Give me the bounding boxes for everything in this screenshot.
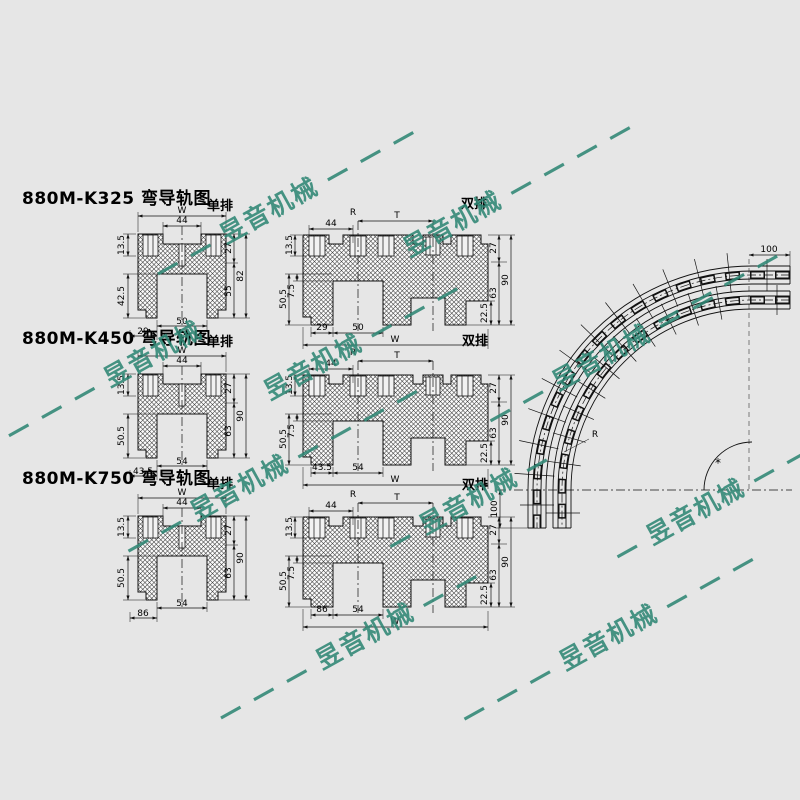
dim-recess: 44 — [176, 498, 188, 508]
drawing-sheet: 880M-K325 弯导轨图 880M-K450 弯导轨图 880M-K750 … — [0, 0, 800, 800]
dim-r-full: 90 — [501, 556, 511, 568]
dim-r: R — [350, 490, 356, 500]
dim-r-top: 27 — [224, 382, 234, 393]
dim-w: W — [178, 206, 187, 216]
profile-geometry — [138, 226, 226, 326]
dim-recess: 44 — [325, 359, 337, 369]
dim-r: R — [350, 348, 356, 358]
dim-bottom-left: 43.5 — [133, 467, 153, 477]
dim-r-low: 63 — [224, 567, 234, 578]
dim-bottom-channel: 54 — [176, 599, 188, 609]
dim-straight-top: 100 — [760, 245, 777, 255]
dim-tab-height: 13.5 — [117, 375, 127, 395]
dim-r-top: 27 — [224, 242, 234, 253]
dim-bottom-channel: 50 — [352, 323, 364, 333]
dim-bottom-channel: 54 — [352, 463, 364, 473]
center-and-dimension-lines: 100 100 * R — [490, 245, 792, 528]
dim-corner: 22.5 — [480, 443, 490, 463]
dim-r-full: 82 — [236, 270, 246, 281]
dim-recess: 44 — [325, 219, 337, 229]
cross-section-single-k325: W 44 13.5 42.5 27 55 82 50 29 — [100, 206, 275, 354]
curved-rail-plan-view: 100 100 * R — [492, 243, 800, 543]
dim-bottom-channel: 54 — [176, 457, 188, 467]
dim-t: T — [393, 211, 400, 221]
radius-label: R — [592, 430, 598, 440]
dim-t: T — [393, 493, 400, 503]
dim-t: T — [393, 351, 400, 361]
profile-geometry — [138, 508, 226, 608]
dim-bottom-left: 29 — [137, 327, 149, 337]
dim-tab-height: 13.5 — [285, 235, 295, 255]
cross-section-double-k450: R T 44 13.5 50.5 7.5 27 63 90 22.5 43.5 … — [283, 343, 523, 501]
dim-w: W — [178, 488, 187, 498]
dim-r-full: 90 — [236, 552, 246, 564]
dim-recess: 44 — [176, 356, 188, 366]
profile-geometry — [138, 366, 226, 466]
dim-leg-height: 50.5 — [117, 426, 127, 446]
dim-leg-height: 42.5 — [117, 286, 127, 306]
dim-tab-height: 13.5 — [117, 235, 127, 255]
dim-bottom-left: 86 — [137, 609, 149, 619]
cross-section-single-k450: W 44 13.5 50.5 27 63 90 54 43.5 — [100, 346, 275, 494]
dim-r-low: 63 — [224, 425, 234, 436]
rail-arcs — [528, 266, 790, 528]
dim-tab-height: 13.5 — [285, 517, 295, 537]
dim-corner: 22.5 — [480, 303, 490, 323]
dim-tab-height: 13.5 — [285, 375, 295, 395]
dim-w: W — [178, 346, 187, 356]
dim-r: R — [350, 208, 356, 218]
angle-mark: * — [715, 456, 721, 470]
dim-bottom-left: 43.5 — [312, 463, 332, 473]
dim-tab-height: 13.5 — [117, 517, 127, 537]
dim-recess: 44 — [325, 501, 337, 511]
dim-corner: 22.5 — [480, 585, 490, 605]
dim-w: W — [391, 475, 400, 485]
dim-step: 7.5 — [287, 284, 297, 298]
dim-recess: 44 — [176, 216, 188, 226]
cross-section-double-k750: R T 44 13.5 50.5 7.5 27 63 90 22.5 86 54… — [283, 485, 523, 643]
dim-r-low: 63 — [489, 569, 499, 580]
profile-geometry — [303, 503, 488, 613]
dim-step: 7.5 — [287, 424, 297, 438]
profile-geometry — [303, 361, 488, 471]
dim-bottom-left: 86 — [316, 605, 328, 615]
dim-r-top: 27 — [224, 524, 234, 535]
dim-straight-side: 100 — [490, 500, 500, 517]
dim-bottom-channel: 50 — [176, 317, 188, 327]
dim-bottom-channel: 54 — [352, 605, 364, 615]
dim-bottom-left: 29 — [316, 323, 328, 333]
dim-r-full: 90 — [236, 410, 246, 422]
dim-w: W — [391, 617, 400, 627]
dim-r-low: 55 — [224, 285, 234, 296]
dim-leg-height: 50.5 — [117, 568, 127, 588]
cross-section-single-k750: W 44 13.5 50.5 27 63 90 54 86 — [100, 488, 275, 636]
cross-section-double-k325: R T 44 13.5 50.5 7.5 27 63 90 22.5 29 50… — [283, 203, 523, 361]
dim-step: 7.5 — [287, 566, 297, 580]
profile-geometry — [303, 221, 488, 331]
